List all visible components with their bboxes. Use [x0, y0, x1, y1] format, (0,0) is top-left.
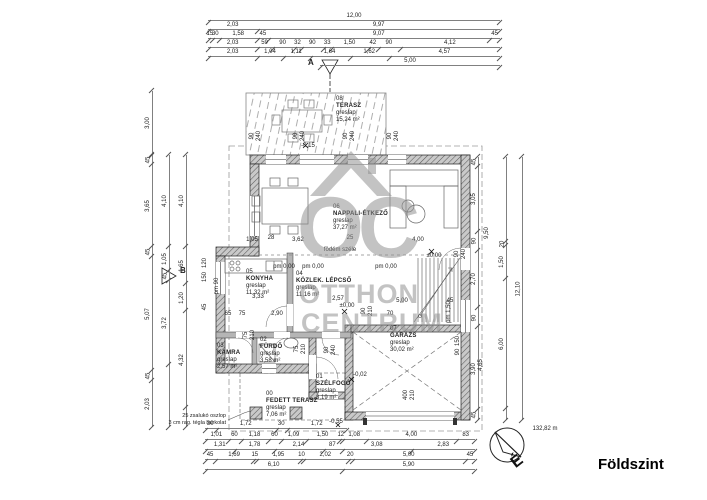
dim-segment: 6,00 — [498, 279, 506, 409]
dim-value: 45 — [471, 158, 477, 165]
dim-value: 1,62 — [363, 49, 375, 55]
dim-segment: 1,01 — [205, 431, 228, 439]
plan-annotation: 90 — [293, 133, 299, 140]
room-area: 3,19 m² — [316, 395, 351, 402]
dim-value: 12,00 — [346, 13, 361, 19]
dim-chain: 12,00 — [208, 12, 500, 21]
dim-value: 3,00 — [145, 117, 151, 129]
dim-value: 1,11 — [291, 49, 302, 55]
room-floor: greslap — [246, 283, 273, 290]
room-area: 30,02 m² — [390, 347, 417, 354]
room-name: FÜRDŐ — [260, 344, 282, 351]
room-name: KÖZLEK. LÉPCSŐ — [296, 278, 351, 285]
room-area: 11,16 m² — [296, 292, 351, 299]
dim-value: 2,03 — [227, 40, 239, 46]
dim-value: 2,83 — [437, 442, 449, 448]
dim-value: 3,65 — [145, 200, 151, 212]
dim-segment: 30 — [212, 30, 219, 38]
dim-value: 1,95 — [273, 452, 285, 458]
room-floor: greslap — [266, 405, 318, 412]
dim-chain: 3,00 — [144, 91, 153, 155]
dim-segment: 90 — [378, 39, 400, 47]
dim-value: 1,18 — [249, 432, 261, 438]
dim-segment — [498, 409, 506, 420]
dim-value: 45 — [207, 452, 214, 458]
dim-segment: 87 — [323, 441, 343, 449]
room-number: 03 — [217, 343, 240, 350]
dim-chain: 2,031,041,111,641,624,57 — [208, 48, 500, 57]
dim-segment — [498, 157, 506, 242]
room-number: 02 — [260, 337, 282, 344]
plan-annotation: 28 — [268, 235, 275, 241]
terrace-area — [246, 93, 386, 155]
plan-annotation: -0,55 — [329, 419, 343, 425]
plan-annotation: 132,82 m — [532, 426, 557, 432]
dim-segment: 90 — [470, 232, 478, 251]
dim-value: 45 — [260, 31, 267, 37]
dim-value: 6,00 — [499, 338, 505, 350]
room-area: 15,24 m² — [336, 117, 361, 124]
dim-value: 4,00 — [406, 432, 418, 438]
dim-chain: 2,039,97 — [208, 21, 500, 30]
dim-segment: 5,00 — [352, 451, 464, 459]
dim-segment: 33 — [323, 39, 331, 47]
plan-annotation: 210 — [410, 390, 416, 400]
dim-value: 30 — [278, 421, 285, 427]
dim-value: 3,72 — [162, 317, 168, 329]
dim-segment: 1,78 — [234, 441, 274, 449]
plan-annotation: 45 — [202, 304, 208, 311]
dim-segment: 1,11 — [283, 48, 310, 56]
room-label-konyha: 05 KONYHA greslap 11,32 m² — [246, 269, 273, 297]
dim-segment: 2,03 — [208, 39, 257, 47]
dim-value: 2,03 — [145, 398, 151, 410]
dim-value: 4,32 — [179, 354, 185, 366]
dim-value: 1,72 — [240, 421, 252, 427]
dim-value: 90 — [471, 314, 477, 321]
plan-annotation: 240 — [461, 249, 467, 259]
dim-segment: 3,65 — [144, 165, 152, 247]
dim-value: 4,10 — [179, 195, 185, 207]
dim-chain: 2,0359903290331,5042904,12 — [208, 39, 500, 48]
dim-value: 2,03 — [227, 22, 239, 28]
room-number: 04 — [296, 271, 351, 278]
room-number: 06 — [333, 204, 388, 211]
plan-annotation: 1,05 — [246, 237, 258, 243]
dim-segment: 2,14 — [274, 441, 322, 449]
plan-annotation: pm 0,00 — [302, 264, 324, 270]
plan-annotation: 210 — [301, 344, 307, 354]
dim-chain: 5,00 — [320, 57, 500, 66]
plan-annotation: 75 — [239, 311, 246, 317]
plan-annotation: 90 — [324, 347, 330, 354]
dim-value: 2,14 — [293, 442, 305, 448]
room-name: TERASZ — [336, 103, 361, 110]
section-letter-a: A — [308, 58, 314, 67]
plan-annotation: ±0,00 — [340, 303, 355, 309]
dim-segment: 5,00 — [320, 57, 500, 65]
dim-value: 1,05 — [162, 253, 168, 265]
dim-value: 4,57 — [439, 49, 451, 55]
dim-value: 5,90 — [403, 462, 415, 468]
dim-segment: 2,03 — [208, 21, 257, 29]
plan-annotation: 90 — [361, 308, 367, 315]
dim-segment: 3,72 — [161, 281, 169, 365]
room-number: 08 — [336, 96, 361, 103]
dim-segment: 2,03 — [208, 48, 257, 56]
dim-chain: 6,105,90 — [205, 461, 475, 470]
room-label-furdo: 02 FÜRDŐ greslap 3,58 m² — [260, 337, 282, 365]
dim-value: 4,12 — [444, 40, 456, 46]
plan-annotation: 70 — [387, 311, 394, 317]
dim-value: 90 — [279, 40, 286, 46]
dim-value: 60 — [271, 432, 278, 438]
dim-chain: 4,101,651,204,32 — [178, 155, 187, 427]
dim-value: 1,69 — [228, 452, 240, 458]
plan-annotation: 2,90 — [271, 311, 283, 317]
page-title: Földszint — [598, 456, 664, 473]
plan-annotation: 90 — [249, 133, 255, 140]
dim-segment: 1,50 — [498, 246, 506, 279]
dim-segment: 60 — [268, 431, 281, 439]
dim-value: 3,05 — [471, 193, 477, 205]
dim-value: 45 — [162, 272, 168, 279]
dim-value: 5,00 — [403, 452, 415, 458]
sofa — [390, 170, 458, 228]
dim-value: 1,20 — [179, 292, 185, 304]
dim-segment: 4,32 — [178, 311, 186, 408]
dim-segment: 1,08 — [342, 431, 366, 439]
plan-annotation: 150 — [455, 336, 461, 346]
plan-annotation: 240 — [331, 345, 337, 355]
plan-annotation: 3,62 — [292, 237, 304, 243]
dim-segment: 4,00 — [366, 431, 456, 439]
dim-chain: 201,506,00 — [498, 157, 507, 420]
dim-segment: 1,58 — [219, 30, 257, 38]
dim-segment: 45 — [465, 451, 475, 459]
dim-value: 45 — [467, 452, 474, 458]
plan-annotation: 240 — [256, 131, 262, 141]
dim-segment: 45 — [205, 451, 215, 459]
room-name: FEDETT TERASZ — [266, 398, 318, 405]
dim-segment: 1,09 — [281, 431, 306, 439]
dim-segment: 2,02 — [303, 451, 348, 459]
dim-segment: 9,97 — [257, 21, 500, 29]
dim-segment: 30 — [276, 420, 287, 428]
dim-segment: 4,10 — [178, 155, 186, 247]
dim-segment: 3,90 — [470, 327, 478, 410]
plan-annotation: 5,00 — [396, 298, 408, 304]
room-name: NAPPALI-ÉTKEZŐ — [333, 211, 388, 218]
dim-value: 1,58 — [232, 31, 244, 37]
dim-value: 9,07 — [373, 31, 385, 37]
dim-segment: 5,90 — [342, 461, 475, 469]
room-floor: greslap — [260, 351, 282, 358]
section-letter-b: B — [180, 266, 186, 275]
dim-segment: 5,07 — [144, 257, 152, 371]
dim-value: 83 — [462, 432, 469, 438]
room-label-kamra: 03 KAMRA greslap 2,57 m² — [217, 343, 240, 371]
room-floor: greslap — [333, 218, 388, 225]
room-number: 00 — [266, 391, 318, 398]
dim-segment: 1,64 — [310, 48, 350, 56]
plan-annotation: 25 — [347, 235, 354, 241]
dim-segment: 1,50 — [306, 431, 340, 439]
dim-segment: 3,05 — [470, 167, 478, 232]
room-name: SZÉLFOGÓ — [316, 381, 351, 388]
dim-segment: 3,08 — [342, 441, 411, 449]
dim-value: 45 — [145, 249, 151, 256]
plan-annotation: -0,15 — [301, 143, 315, 149]
dim-value: 12,10 — [515, 281, 521, 296]
dim-value: 4,10 — [162, 195, 168, 207]
dim-segment: 83 — [456, 431, 475, 439]
dim-segment: 9,07 — [268, 30, 489, 38]
plan-annotation: 75 — [243, 332, 249, 339]
dim-segment: 3,00 — [144, 91, 152, 155]
dim-value: 1,78 — [249, 442, 261, 448]
dim-value: 2,02 — [319, 452, 331, 458]
dim-value: 45 — [145, 373, 151, 380]
dim-chain: 453,65455,07452,03 — [144, 155, 153, 427]
dim-chain: 15301,58459,0745 — [208, 30, 500, 39]
dim-value: 30 — [212, 31, 219, 37]
column-note: 25 zsalukó oszlop 3 cm rag. tégla burkol… — [144, 413, 226, 427]
dim-value: 32 — [294, 40, 301, 46]
dim-value: 90 — [309, 40, 316, 46]
plan-annotation: 4,00 — [412, 237, 424, 243]
dim-segment: 1,18 — [241, 431, 268, 439]
dim-value: 5,00 — [404, 58, 416, 64]
dim-segment: 1,62 — [350, 48, 389, 56]
dim-segment: 4,10 — [161, 155, 169, 247]
slab-edge-label: födém széle — [324, 247, 356, 253]
dim-value: 6,10 — [268, 462, 280, 468]
room-area: 2,57 m² — [217, 364, 240, 371]
dim-segment: 4,12 — [400, 39, 500, 47]
note-leader-line — [228, 411, 250, 420]
plan-annotation: pm 0,00 — [375, 264, 397, 270]
plan-annotation: 90 — [343, 133, 349, 140]
dim-value: 90 — [471, 238, 477, 245]
dim-chain: 453,05902,70903,9045 — [470, 157, 479, 420]
plan-annotation: pm 1,50 — [446, 301, 452, 323]
dim-value: 3,08 — [371, 442, 383, 448]
dim-segment: 60 — [228, 431, 241, 439]
room-floor: greslap — [217, 357, 240, 364]
dim-value: 45 — [471, 412, 477, 419]
plan-annotation: 240 — [300, 131, 306, 141]
plan-annotation: 65 — [225, 311, 232, 317]
room-number: 01 — [316, 374, 351, 381]
room-name: KAMRA — [217, 350, 240, 357]
plan-annotation: 120 — [202, 258, 208, 268]
dim-value: 1,64 — [324, 49, 336, 55]
plan-annotation: 4,65 — [478, 359, 484, 371]
plan-annotation: 90 — [387, 133, 393, 140]
dim-segment: 45 — [470, 410, 478, 420]
dim-segment: 12,00 — [208, 12, 500, 20]
room-area: 7,06 m² — [266, 412, 318, 419]
plan-annotation: 210 — [368, 306, 374, 316]
dim-segment: 90 — [272, 39, 294, 47]
dim-segment: 90 — [301, 39, 323, 47]
room-floor: greslap — [296, 285, 351, 292]
dim-chain: 451,69151,95102,02205,0045 — [205, 451, 475, 460]
dim-value: 1,72 — [311, 421, 323, 427]
dim-value: 2,03 — [227, 49, 239, 55]
room-label-kozlekedo: 04 KÖZLEK. LÉPCSŐ greslap 11,16 m² — [296, 271, 351, 299]
room-label-terasz: 08 TERASZ greslap 15,24 m² — [336, 96, 361, 124]
dim-value: 1,31 — [214, 442, 226, 448]
dim-value: 45 — [145, 157, 151, 164]
room-label-szelfogo: 01 SZÉLFOGÓ greslap 3,19 m² — [316, 374, 351, 402]
room-name: GARÁZS — [390, 333, 417, 340]
room-name: KONYHA — [246, 276, 273, 283]
dim-segment: 45 — [257, 30, 268, 38]
dim-segment: 59 — [257, 39, 271, 47]
dim-segment: 32 — [294, 39, 302, 47]
room-floor: greslap — [390, 340, 417, 347]
dim-segment: 90 — [470, 308, 478, 327]
plan-annotation: 150 — [202, 272, 208, 282]
dim-segment: 2,70 — [470, 251, 478, 309]
dim-chain: 1,311,782,14873,082,83 — [205, 441, 475, 450]
dim-value: 87 — [329, 442, 336, 448]
dim-segment: 1,31 — [205, 441, 234, 449]
dim-segment: 1,04 — [257, 48, 282, 56]
dim-value: 1,50 — [499, 257, 505, 269]
room-label-fedett-terasz: 00 FEDETT TERASZ greslap 7,06 m² — [266, 391, 318, 419]
dim-value: 1,01 — [211, 432, 223, 438]
dim-chain: 12,10 — [514, 157, 523, 420]
dining-table — [252, 178, 308, 234]
room-area: 11,32 m² — [246, 290, 273, 297]
column — [250, 407, 262, 419]
room-number: 07 — [390, 326, 417, 333]
dim-segment: 6,10 — [205, 461, 342, 469]
dim-segment: 1,05 — [161, 247, 169, 271]
plan-annotation: 90 — [454, 251, 460, 258]
dim-chain: 301,72301,72 — [205, 420, 347, 429]
plan-annotation: pm 0,00 — [273, 264, 295, 270]
dim-value: 1,50 — [344, 40, 356, 46]
plan-annotation: 9,50 — [484, 227, 490, 239]
dim-value: 90 — [386, 40, 393, 46]
plan-annotation: ±0,00 — [427, 253, 442, 259]
dim-segment: 45 — [489, 30, 500, 38]
room-label-nappali: 06 NAPPALI-ÉTKEZŐ greslap 37,27 m² — [333, 204, 388, 232]
floor-plan-page: 12,002,039,9715301,58459,07452,035990329… — [0, 0, 707, 500]
dim-value: 60 — [231, 432, 238, 438]
dim-segment: 1,69 — [215, 451, 253, 459]
dim-value: 59 — [261, 40, 268, 46]
dim-segment: 2,83 — [411, 441, 475, 449]
dim-value: 2,70 — [471, 274, 477, 286]
dim-segment: 12,10 — [514, 157, 522, 420]
dim-segment: 42 — [368, 39, 378, 47]
dim-value: 3,90 — [471, 363, 477, 375]
dim-value: 45 — [491, 31, 498, 37]
dim-value: 1,50 — [317, 432, 329, 438]
room-floor: greslap — [336, 110, 361, 117]
plan-annotation: pm 90 — [214, 278, 220, 295]
dim-value: 1,09 — [288, 432, 300, 438]
dim-value: 1,04 — [264, 49, 276, 55]
dim-value: 9,97 — [373, 22, 385, 28]
dim-segment: 4,57 — [389, 48, 500, 56]
dim-value: 42 — [369, 40, 376, 46]
dim-segment: 1,95 — [256, 451, 300, 459]
plan-annotation: 400 — [403, 390, 409, 400]
dim-segment: 1,20 — [178, 284, 186, 311]
column-note-line1: 25 zsalukó oszlop — [144, 413, 226, 420]
plan-annotation: 240 — [394, 131, 400, 141]
dim-segment: 1,50 — [331, 39, 367, 47]
stairs — [414, 258, 460, 322]
dim-chain: 4,101,05453,72 — [161, 155, 170, 427]
dim-chain: 1,01601,18601,091,50121,084,0083 — [205, 431, 475, 440]
room-area: 3,58 m² — [260, 358, 282, 365]
room-floor: greslap — [316, 388, 351, 395]
plan-annotation: -0,02 — [353, 372, 367, 378]
plan-annotation: 75 — [294, 346, 300, 353]
room-number: 05 — [246, 269, 273, 276]
room-area: 37,27 m² — [333, 225, 388, 232]
dim-value: 5,07 — [145, 308, 151, 320]
column-note-line2: 3 cm rag. tégla burkolat — [144, 420, 226, 427]
plan-annotation: 90 — [455, 349, 461, 356]
dim-value: 1,08 — [348, 432, 360, 438]
plan-annotation: 210 — [250, 330, 256, 340]
dim-value: 33 — [324, 40, 331, 46]
room-label-garazs: 07 GARÁZS greslap 30,02 m² — [390, 326, 417, 354]
plan-annotation: 240 — [350, 131, 356, 141]
